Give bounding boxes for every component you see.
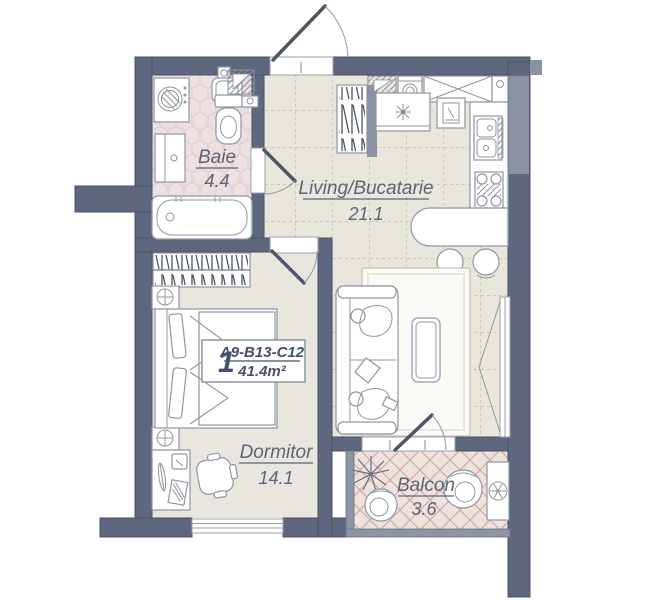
washing-machine-icon xyxy=(154,78,189,122)
nightstand-lamp-icon xyxy=(152,286,179,309)
floor-plan: Baie 4.4 Living/Bucatarie 21.1 Dormitor … xyxy=(0,0,656,600)
nightstand-lamp-icon-2 xyxy=(152,427,179,450)
left-wall-lower xyxy=(135,212,152,518)
bathroom-label: Baie xyxy=(198,147,236,168)
neighbor-wall-stub xyxy=(530,60,542,75)
left-wall-upper xyxy=(135,57,152,186)
right-wall-light-segment xyxy=(509,76,529,174)
bottom-left-foot xyxy=(100,518,192,537)
bathtub-icon xyxy=(152,196,252,239)
ac-unit-icon xyxy=(487,462,509,520)
entry-door xyxy=(273,6,348,60)
balcony-railing-bottom xyxy=(346,529,510,537)
balcony-chair-icon xyxy=(365,489,397,521)
bar-counter-icon xyxy=(411,208,508,246)
bedroom-window xyxy=(192,519,283,533)
toilet-icon xyxy=(215,95,242,144)
floor-plan-drawing: Baie 4.4 Living/Bucatarie 21.1 Dormitor … xyxy=(0,0,656,600)
oven-icon xyxy=(437,98,465,128)
unit-code: A9-B13-C12 xyxy=(219,344,305,361)
desk-icon xyxy=(152,450,190,510)
balcony-railing-left xyxy=(346,451,354,537)
wardrobe-icon xyxy=(153,253,250,287)
left-pier xyxy=(75,186,152,212)
bedroom-label: Dormitor xyxy=(240,442,314,463)
unit-label-box: 1 A9-B13-C12 41.4m² xyxy=(202,340,305,382)
bedroom-area: 14.1 xyxy=(258,468,293,488)
kitchen-sink-icon xyxy=(474,116,503,160)
top-wall-right xyxy=(333,57,530,75)
balcony-wall-right xyxy=(455,437,508,451)
bathroom-door-opening xyxy=(251,148,265,193)
keyboard-icon xyxy=(168,480,188,505)
coffee-table-icon xyxy=(412,318,440,382)
bedroom-living-divider xyxy=(318,238,332,537)
balcony-label: Balcon xyxy=(397,475,455,496)
stove-icon xyxy=(475,172,503,208)
dining-table-icon xyxy=(376,93,430,131)
bedroom-door-opening xyxy=(270,237,318,253)
living-label: Living/Bucatarie xyxy=(298,178,433,199)
bathroom-bedroom-divider xyxy=(135,238,270,252)
bathroom-vanity-icon xyxy=(155,134,185,182)
living-area: 21.1 xyxy=(347,204,383,224)
bathroom-area: 4.4 xyxy=(204,171,229,191)
living-furniture xyxy=(336,268,470,436)
sofa-icon xyxy=(336,286,398,434)
balcony-wall-left xyxy=(332,437,362,451)
balcony-area: 3.6 xyxy=(411,499,437,519)
bathroom-right-wall-lower xyxy=(252,193,264,239)
unit-area: 41.4m² xyxy=(237,363,287,380)
